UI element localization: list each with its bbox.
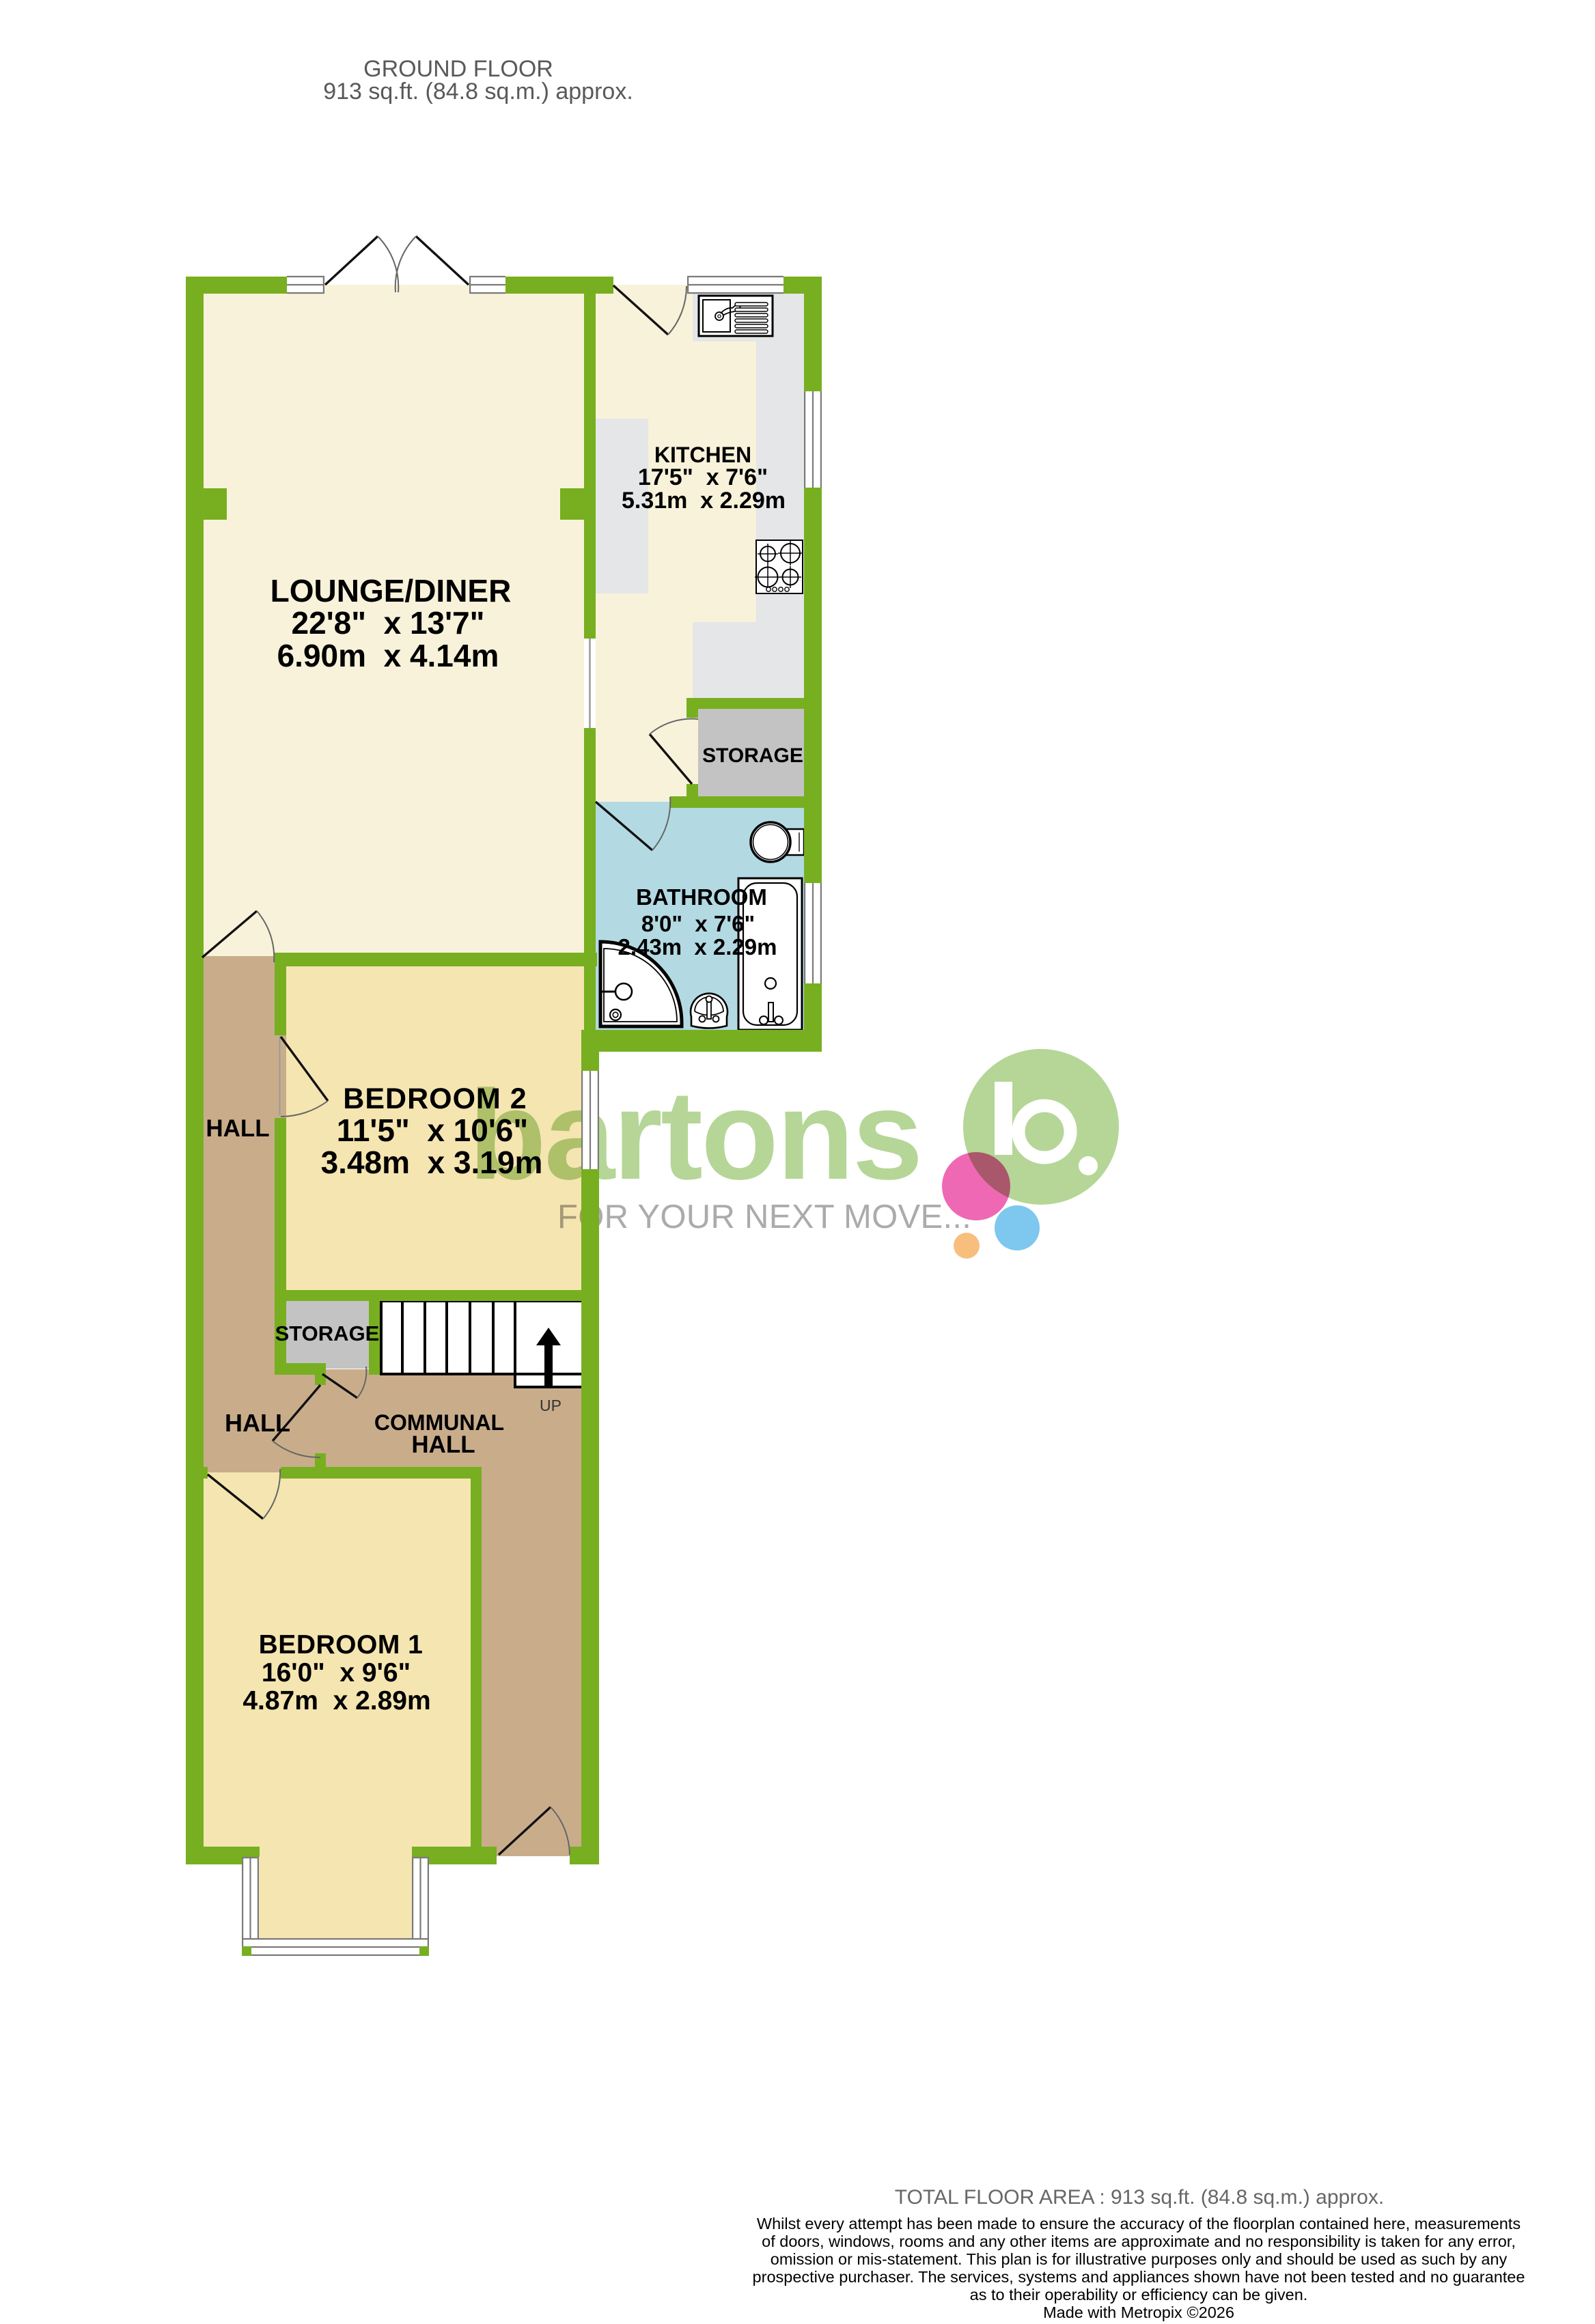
svg-text:4.87m x 2.89m: 4.87m x 2.89m (242, 1686, 430, 1716)
svg-text:BATHROOM: BATHROOM (636, 884, 767, 910)
svg-text:HALL: HALL (225, 1409, 290, 1437)
svg-text:FOR YOUR NEXT MOVE...: FOR YOUR NEXT MOVE... (557, 1199, 971, 1235)
svg-text:as to their operability or eff: as to their operability or efficiency ca… (970, 2286, 1308, 2304)
svg-text:Made with Metropix ©2026: Made with Metropix ©2026 (1043, 2304, 1234, 2321)
svg-text:2.43m x 2.29m: 2.43m x 2.29m (618, 934, 777, 960)
svg-text:UP: UP (540, 1397, 561, 1414)
svg-text:Whilst every attempt has been: Whilst every attempt has been made to en… (757, 2215, 1521, 2232)
svg-text:22'8" x 13'7": 22'8" x 13'7" (292, 605, 485, 641)
svg-text:HALL: HALL (411, 1431, 475, 1458)
svg-text:BEDROOM 1: BEDROOM 1 (259, 1630, 424, 1660)
svg-text:8'0" x 7'6": 8'0" x 7'6" (641, 911, 755, 936)
svg-text:omission or mis-statement. Thi: omission or mis-statement. This plan is … (771, 2250, 1508, 2268)
svg-text:17'5" x 7'6": 17'5" x 7'6" (638, 464, 768, 490)
svg-text:11'5" x 10'6": 11'5" x 10'6" (337, 1112, 528, 1148)
svg-text:3.48m x 3.19m: 3.48m x 3.19m (321, 1145, 543, 1180)
svg-text:HALL: HALL (206, 1115, 269, 1142)
svg-text:LOUNGE/DINER: LOUNGE/DINER (271, 573, 512, 608)
svg-text:5.31m x 2.29m: 5.31m x 2.29m (622, 488, 786, 514)
svg-text:bartons: bartons (469, 1065, 921, 1206)
svg-text:6.90m x 4.14m: 6.90m x 4.14m (277, 638, 499, 673)
svg-text:of doors, windows, rooms and a: of doors, windows, rooms and any other i… (762, 2232, 1516, 2250)
svg-text:BEDROOM 2: BEDROOM 2 (343, 1082, 527, 1115)
svg-text:KITCHEN: KITCHEN (654, 443, 751, 467)
svg-text:prospective purchaser. The ser: prospective purchaser. The services, sys… (753, 2268, 1525, 2286)
svg-text:16'0" x 9'6": 16'0" x 9'6" (262, 1658, 411, 1688)
svg-text:913 sq.ft. (84.8 sq.m.) approx: 913 sq.ft. (84.8 sq.m.) approx. (323, 79, 633, 104)
svg-text:STORAGE: STORAGE (702, 744, 803, 767)
svg-text:STORAGE: STORAGE (275, 1321, 380, 1345)
svg-text:TOTAL FLOOR AREA : 913 sq.ft.: TOTAL FLOOR AREA : 913 sq.ft. (84.8 sq.m… (895, 2186, 1384, 2209)
